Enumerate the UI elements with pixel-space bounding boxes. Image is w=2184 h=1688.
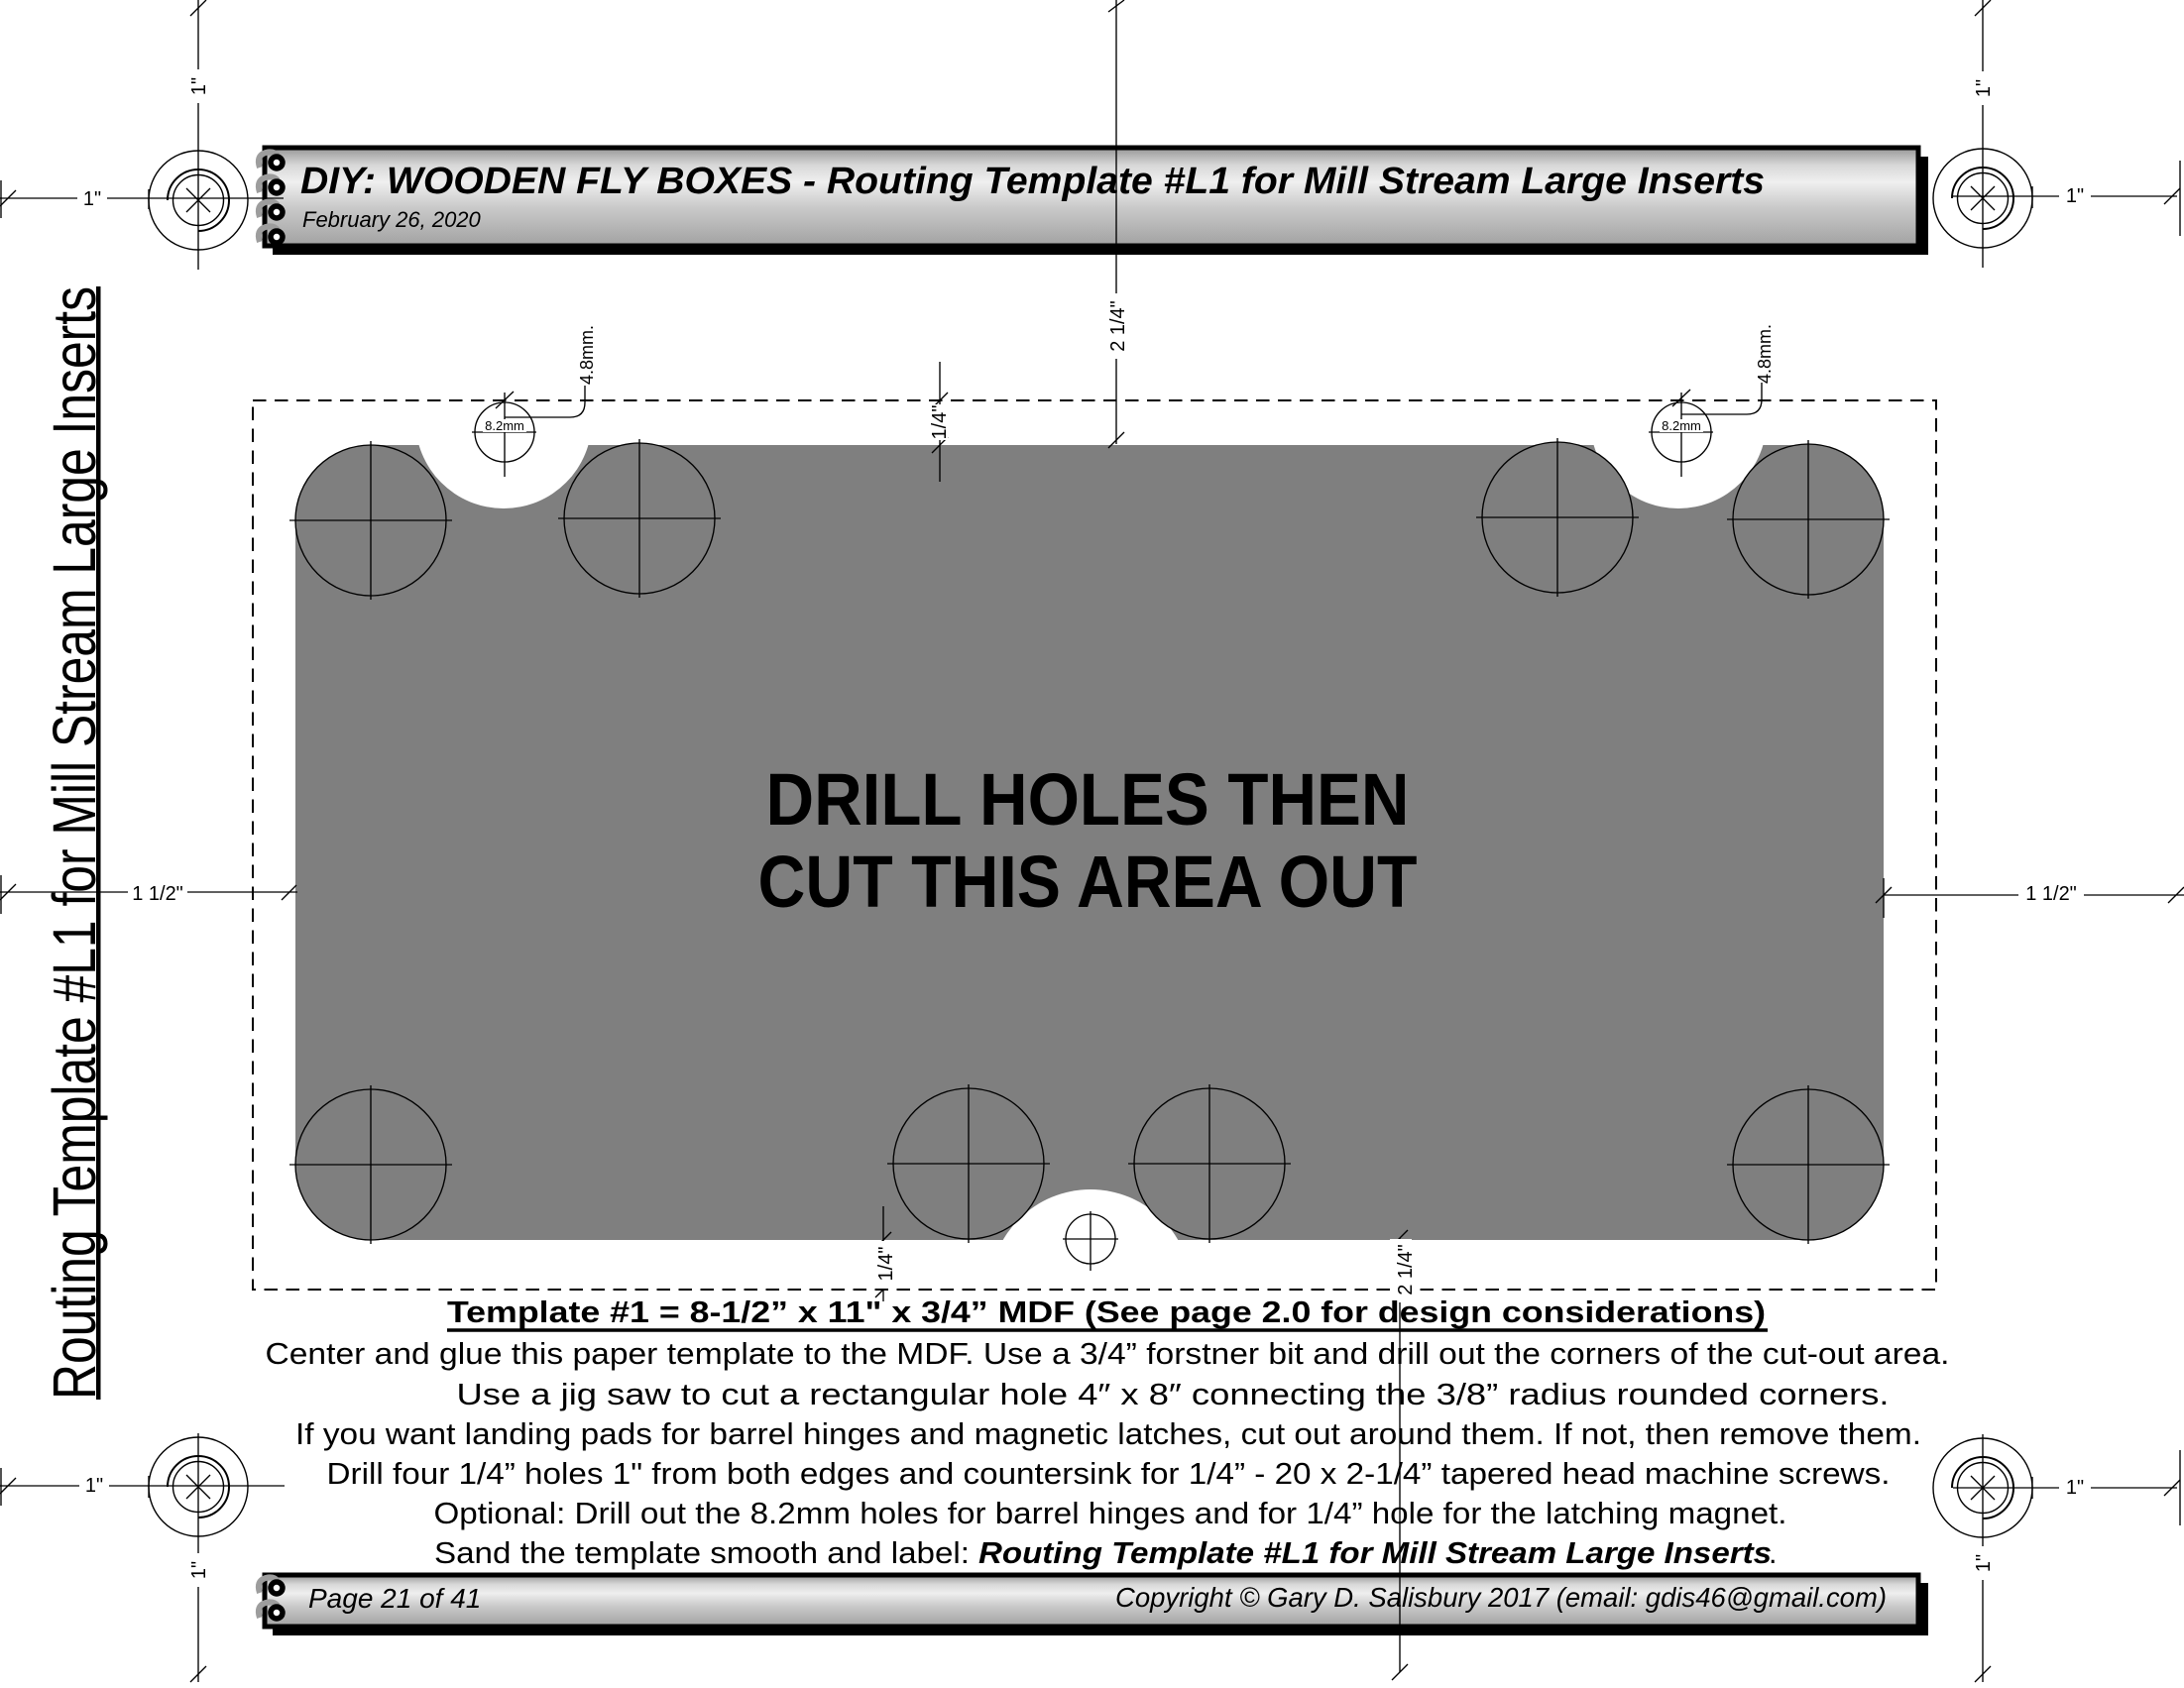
svg-text:DIY: WOODEN FLY BOXES - Routin: DIY: WOODEN FLY BOXES - Routing Template… bbox=[300, 161, 1765, 202]
svg-text:February 26, 2020: February 26, 2020 bbox=[302, 207, 482, 232]
svg-text:DRILL HOLES THEN: DRILL HOLES THEN bbox=[766, 758, 1410, 841]
svg-text:2 1/4": 2 1/4" bbox=[1395, 1244, 1417, 1295]
svg-text:1": 1" bbox=[2066, 1477, 2084, 1499]
svg-text:Routing Template #L1 for Mill: Routing Template #L1 for Mill Stream Lar… bbox=[978, 1536, 1772, 1570]
svg-text:Center and glue this paper tem: Center and glue this paper template to t… bbox=[266, 1337, 1950, 1371]
svg-text:1 1/2": 1 1/2" bbox=[2025, 883, 2077, 905]
svg-text:Copyright © Gary D. Salisbury: Copyright © Gary D. Salisbury 2017 (emai… bbox=[1115, 1582, 1887, 1613]
svg-text:If you want landing pads for b: If you want landing pads for barrel hing… bbox=[295, 1417, 1921, 1451]
svg-text:8.2mm: 8.2mm bbox=[1662, 418, 1701, 433]
svg-text:CUT THIS AREA OUT: CUT THIS AREA OUT bbox=[758, 841, 1418, 923]
svg-text:2 1/4": 2 1/4" bbox=[1107, 300, 1129, 352]
svg-text:1": 1" bbox=[83, 188, 101, 210]
svg-text:1 1/2": 1 1/2" bbox=[132, 883, 183, 905]
svg-text:4.8mm.: 4.8mm. bbox=[577, 325, 597, 385]
svg-text:Template #1 = 8-1/2” x 11" x 3: Template #1 = 8-1/2” x 11" x 3/4” MDF (S… bbox=[447, 1295, 1766, 1329]
svg-text:Use a jig saw to cut a rectang: Use a jig saw to cut a rectangular hole … bbox=[457, 1378, 1890, 1411]
svg-text:4.8mm.: 4.8mm. bbox=[1755, 324, 1775, 384]
svg-text:1": 1" bbox=[85, 1475, 103, 1497]
svg-text:1": 1" bbox=[1973, 79, 1995, 97]
svg-text:Sand the template smooth and l: Sand the template smooth and label: bbox=[434, 1536, 970, 1570]
svg-text:8.2mm: 8.2mm bbox=[485, 418, 524, 433]
svg-text:1": 1" bbox=[2066, 185, 2084, 207]
svg-text:Drill four 1/4” holes 1" from: Drill four 1/4” holes 1" from both edges… bbox=[327, 1457, 1891, 1491]
svg-text:1": 1" bbox=[1973, 1554, 1995, 1572]
svg-text:.: . bbox=[1769, 1536, 1777, 1570]
svg-text:1/4": 1/4" bbox=[929, 405, 951, 440]
svg-text:1": 1" bbox=[188, 1561, 210, 1579]
svg-text:Optional: Drill out the 8.2mm: Optional: Drill out the 8.2mm holes for … bbox=[434, 1497, 1787, 1530]
svg-text:1": 1" bbox=[188, 77, 210, 95]
svg-text:1/4": 1/4" bbox=[875, 1247, 897, 1282]
svg-text:Page 21 of 41: Page 21 of 41 bbox=[308, 1583, 481, 1614]
